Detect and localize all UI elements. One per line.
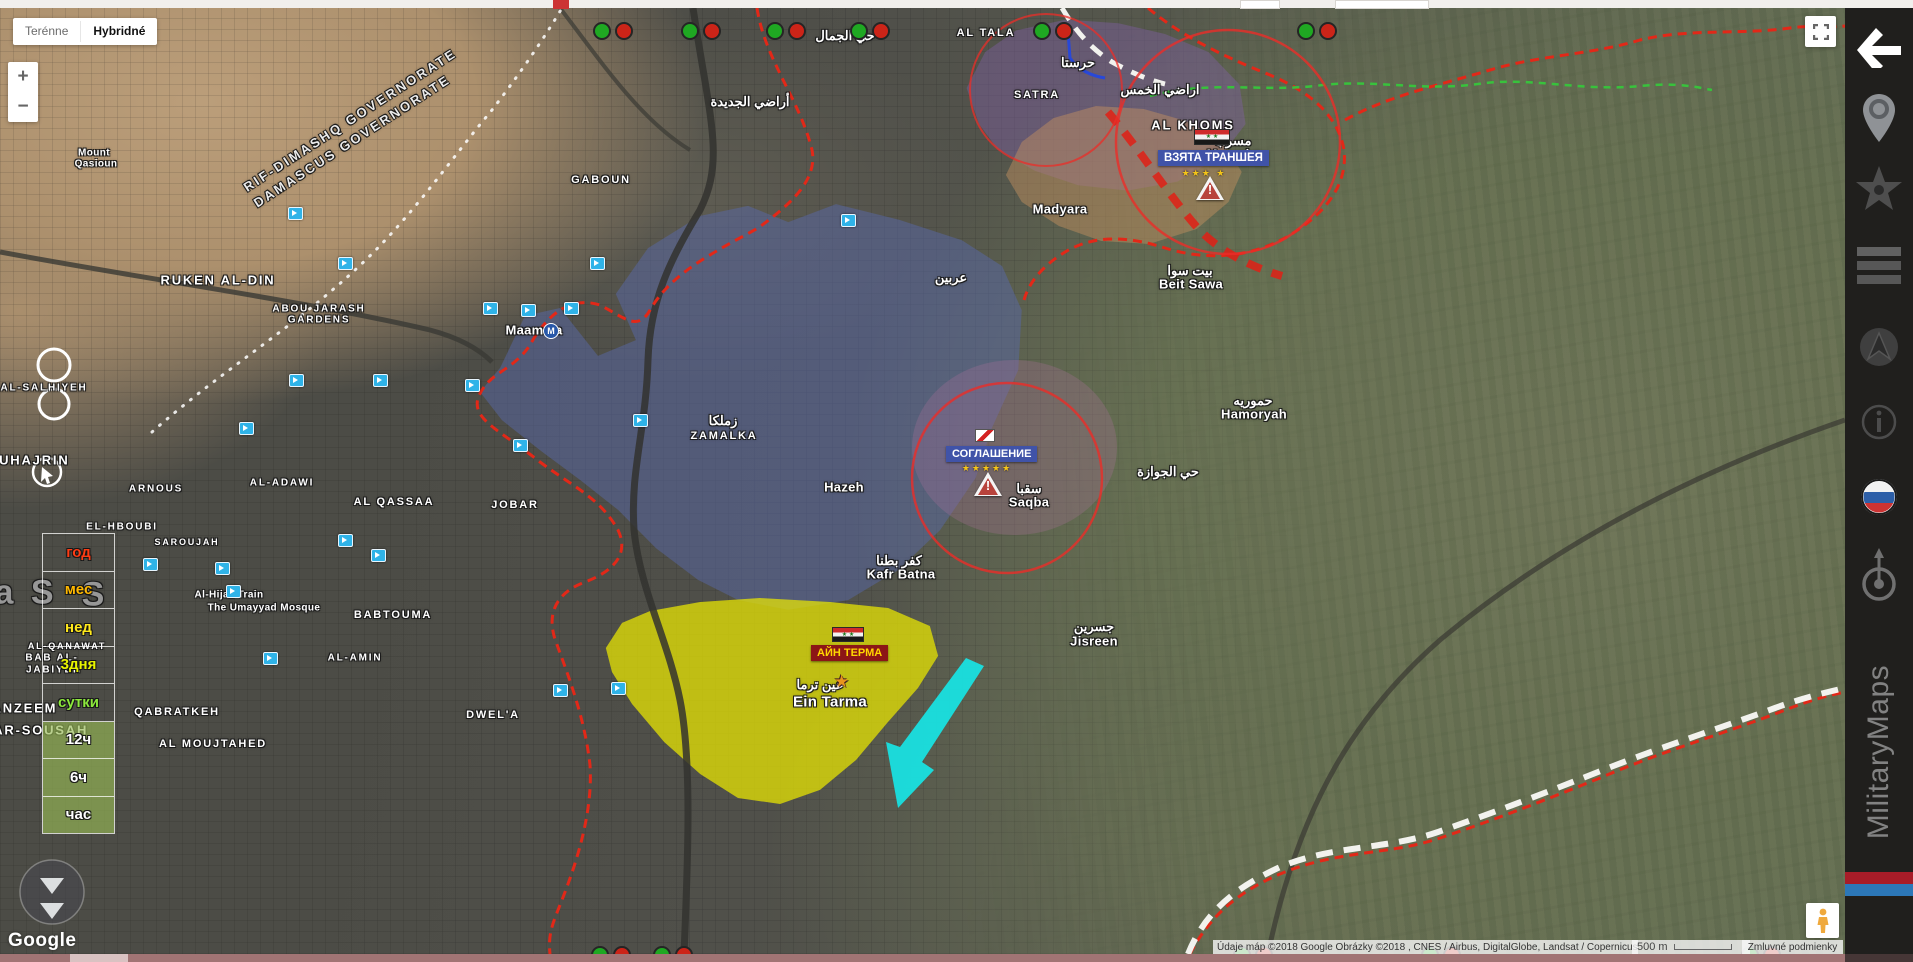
sidebar-stripe-blue — [1845, 884, 1913, 896]
time-filter-item[interactable]: 3дня — [43, 647, 114, 685]
camera-marker-icon[interactable] — [288, 207, 303, 220]
map-type-control: Terénne Hybridné — [13, 18, 157, 45]
status-dot-green[interactable] — [1033, 22, 1051, 40]
front-line-red — [1190, 692, 1845, 954]
map-type-hybrid-button[interactable]: Hybridné — [81, 18, 157, 45]
event-circle-red — [970, 14, 1122, 166]
status-dot-green[interactable] — [593, 22, 611, 40]
time-filter-item[interactable]: нед — [43, 609, 114, 647]
place-label: سقبا — [1016, 481, 1041, 497]
status-dot-red[interactable] — [872, 22, 890, 40]
annotation-ring-white — [33, 458, 61, 486]
place-label: Qasioun — [75, 159, 118, 170]
right-sidebar: MilitaryMaps — [1845, 0, 1913, 954]
place-label: حرستا — [1061, 55, 1095, 71]
place-label: ABOU JARASH — [272, 304, 365, 315]
time-filter-item[interactable]: сутки — [43, 684, 114, 722]
google-logo[interactable]: Google — [8, 930, 76, 952]
info-button[interactable] — [1845, 404, 1913, 440]
page-top-strip — [0, 0, 1913, 8]
place-label: AL-AMIN — [328, 653, 383, 664]
green-dashed-line — [1150, 82, 1712, 96]
camera-marker-icon[interactable] — [373, 374, 388, 387]
truce-line-white — [1062, 8, 1165, 84]
status-dot-red[interactable] — [1319, 22, 1337, 40]
list-icon — [1856, 246, 1902, 286]
star-button[interactable] — [1845, 165, 1913, 211]
place-label: Saqba — [1009, 495, 1050, 510]
star-marker-icon: ★ — [834, 672, 849, 692]
place-label: Hamoryah — [1221, 407, 1287, 422]
place-label: حموريه — [1233, 393, 1272, 409]
zone-yellow-ain-terma — [590, 593, 950, 813]
place-label: Ein Tarma — [793, 694, 867, 711]
camera-marker-icon[interactable] — [611, 682, 626, 695]
road-line — [560, 8, 690, 150]
place-label: ZAMALKA — [691, 430, 758, 442]
place-label: AL-ADAWI — [250, 478, 314, 489]
camera-marker-icon[interactable] — [289, 374, 304, 387]
clipped-label-fragment — [1240, 0, 1280, 9]
status-dot-red[interactable] — [615, 22, 633, 40]
truce-flag-icon — [975, 429, 995, 442]
time-filter-item[interactable]: год — [43, 534, 114, 572]
star-icon — [1855, 165, 1903, 211]
location-pin-button[interactable] — [1845, 93, 1913, 143]
place-label: Jisreen — [1070, 634, 1118, 649]
place-label: AL-SALHIYEH — [0, 383, 87, 394]
navigation-arrow-icon — [1859, 327, 1899, 367]
cursor-arrow-icon — [41, 467, 53, 484]
governorate-boundary-dotted — [152, 8, 562, 432]
list-button[interactable] — [1845, 246, 1913, 286]
urban-grid-texture — [0, 8, 1845, 954]
map-vector-overlay — [0, 8, 1845, 954]
place-label: Madyara — [1033, 202, 1088, 217]
status-dot-green[interactable] — [1297, 22, 1315, 40]
road-line — [0, 252, 492, 362]
place-label: MUHAJRIN — [0, 453, 70, 468]
clipped-label-fragment — [553, 0, 569, 9]
blue-line — [1068, 32, 1105, 78]
place-label: أراضي الجديدة — [710, 94, 789, 110]
navigation-button[interactable] — [1845, 327, 1913, 367]
place-label: Beit Sawa — [1159, 277, 1223, 292]
scrollbar-corner — [1845, 954, 1913, 962]
place-label: Mount — [78, 148, 110, 159]
camera-marker-icon[interactable] — [226, 585, 241, 598]
road-line — [1268, 420, 1845, 954]
place-label: بيت سوا — [1167, 263, 1212, 279]
scrollbar-thumb[interactable] — [70, 954, 128, 962]
syria-flag-icon: ★ ★ — [1194, 129, 1230, 145]
warning-triangle-icon: ! — [974, 472, 1002, 496]
place-label: Maamala — [505, 323, 562, 338]
event-label-vzyata-transheya[interactable]: ВЗЯТА ТРАНШЕЯ — [1158, 150, 1269, 166]
status-dot-red[interactable] — [703, 22, 721, 40]
map-type-terrain-button[interactable]: Terénne — [13, 18, 80, 45]
russia-flag-icon — [1860, 478, 1898, 516]
status-dot-red[interactable] — [1055, 22, 1073, 40]
compass-target-icon — [1860, 548, 1898, 604]
place-label: حي الجوازة — [1137, 464, 1199, 480]
place-label: Al-Hijaz Train — [195, 590, 264, 601]
road-line — [633, 8, 713, 954]
time-filter-panel: годмеснед3днясутки12ч6ччас — [42, 533, 115, 834]
syria-flag-icon: ★ ★ — [832, 627, 864, 642]
camera-marker-icon[interactable] — [143, 558, 158, 571]
place-label: EL-HBOUBI — [86, 522, 158, 533]
place-label: ARNOUS — [129, 484, 183, 495]
place-label: اراضي الخمس — [1120, 82, 1199, 98]
place-label: The Umayyad Mosque — [208, 603, 321, 614]
event-label-soglashenie[interactable]: СОГЛАШЕНИЕ — [946, 446, 1037, 462]
status-dot-red[interactable] — [613, 946, 631, 954]
camera-marker-icon[interactable] — [521, 304, 536, 317]
camera-marker-icon[interactable] — [553, 684, 568, 697]
place-label: RIF-DIMASHQ GOVERNORATE — [241, 45, 460, 194]
status-dot-green[interactable] — [681, 22, 699, 40]
front-line-red — [477, 8, 813, 954]
location-pin-icon — [1861, 93, 1897, 143]
truce-line-white — [1188, 688, 1845, 954]
zoom-in-button[interactable]: + — [8, 62, 38, 92]
pegman-icon — [1815, 908, 1831, 934]
camera-marker-icon[interactable] — [239, 422, 254, 435]
scale-label: 500 m — [1637, 941, 1668, 953]
pan-triangle-icon — [40, 903, 64, 919]
status-dot-green[interactable] — [850, 22, 868, 40]
event-label-ain-terma[interactable]: АЙН ТЕРМА — [811, 645, 888, 661]
place-label: SATRA — [1014, 89, 1060, 101]
zoom-control: + − — [8, 62, 38, 122]
camera-marker-icon[interactable] — [590, 257, 605, 270]
militarymaps-app: RIF-DIMASHQ GOVERNORATEDAMASCUS GOVERNOR… — [0, 0, 1913, 962]
place-label: عربين — [935, 270, 967, 286]
camera-marker-icon[interactable] — [338, 257, 353, 270]
status-dot-green[interactable] — [653, 946, 671, 954]
fullscreen-button[interactable] — [1805, 16, 1836, 47]
place-label: جسرين — [1074, 619, 1114, 635]
info-icon — [1861, 404, 1897, 440]
annotation-ring-white — [38, 349, 70, 381]
place-label: DAMASCUS GOVERNORATE — [251, 72, 453, 211]
terms-link[interactable]: Zmluvné podmienky — [1742, 940, 1843, 954]
status-dot-green[interactable] — [591, 946, 609, 954]
place-label: DWEL'A — [466, 709, 520, 721]
camera-marker-icon[interactable] — [633, 414, 648, 427]
zoom-out-button[interactable]: − — [8, 92, 38, 122]
fullscreen-brackets-icon — [1813, 24, 1829, 40]
farmland-texture — [0, 8, 1845, 954]
place-label: حي الجمال — [815, 28, 874, 44]
back-arrow-icon — [1856, 26, 1902, 68]
compass-target-button[interactable] — [1845, 548, 1913, 604]
rebel-zone-blue — [468, 194, 1043, 634]
place-label: GABOUN — [571, 174, 631, 186]
camera-marker-icon[interactable] — [841, 214, 856, 227]
flag-stars: ★ ★ — [833, 632, 863, 638]
place-label: Kafr Batna — [867, 567, 936, 582]
time-filter-item[interactable]: 6ч — [43, 759, 114, 797]
time-filter-item[interactable]: час — [43, 797, 114, 834]
place-label: زملكا — [709, 413, 738, 429]
russia-flag-button[interactable] — [1845, 478, 1913, 516]
front-line-red — [1345, 26, 1845, 120]
place-label: SAROUJAH — [155, 537, 220, 547]
place-label: BABTOUMA — [354, 609, 432, 621]
back-arrow-button[interactable] — [1845, 26, 1913, 68]
advance-arrow-cyan — [886, 658, 984, 808]
status-dot-red[interactable] — [675, 946, 693, 954]
place-label: GARDENS — [288, 315, 351, 326]
time-filter-item[interactable]: мес — [43, 572, 114, 610]
sidebar-stripe-red — [1845, 872, 1913, 884]
scale-bar — [1674, 944, 1732, 950]
camera-marker-icon[interactable] — [564, 302, 579, 315]
map-labels-layer: RIF-DIMASHQ GOVERNORATEDAMASCUS GOVERNOR… — [0, 8, 1845, 954]
flag-stars: ★ ★ — [1195, 134, 1229, 140]
place-label: AL MOUJTAHED — [159, 738, 267, 750]
place-label: Hazeh — [824, 480, 864, 495]
warning-triangle-icon: ! — [1196, 176, 1224, 200]
metro-station-icon: M — [543, 323, 559, 339]
camera-marker-icon[interactable] — [483, 302, 498, 315]
clipped-label-fragment — [1335, 0, 1429, 9]
event-circle-red — [912, 383, 1102, 573]
place-label: QABRATKEH — [134, 706, 220, 718]
place-label: AL QASSAA — [354, 496, 435, 508]
status-dot-green[interactable] — [766, 22, 784, 40]
place-label: AL TALA — [957, 27, 1016, 39]
place-label: RUKEN AL-DIN — [161, 273, 276, 288]
camera-marker-icon[interactable] — [338, 534, 353, 547]
camera-marker-icon[interactable] — [465, 379, 480, 392]
camera-marker-icon[interactable] — [513, 439, 528, 452]
time-filter-item[interactable]: 12ч — [43, 722, 114, 760]
camera-marker-icon[interactable] — [215, 562, 230, 575]
brand-militarymaps: MilitaryMaps — [1862, 642, 1896, 862]
map-canvas[interactable]: RIF-DIMASHQ GOVERNORATEDAMASCUS GOVERNOR… — [0, 8, 1845, 954]
pan-triangle-icon — [40, 878, 64, 894]
place-label: كفر بطنا — [876, 553, 922, 569]
horizontal-scrollbar[interactable] — [0, 954, 1845, 962]
pan-widget-circle — [20, 860, 84, 924]
map-markers-layer: M — [0, 8, 1845, 954]
annotation-ring-white — [39, 389, 69, 419]
place-label: JOBAR — [491, 499, 539, 511]
camera-marker-icon[interactable] — [371, 549, 386, 562]
status-dot-red[interactable] — [788, 22, 806, 40]
camera-marker-icon[interactable] — [263, 652, 278, 665]
map-attribution: Údaje máp ©2018 Google Obrázky ©2018 , C… — [1213, 940, 1638, 954]
scale-control: 500 m — [1632, 940, 1750, 954]
pegman-streetview-button[interactable] — [1806, 903, 1839, 938]
